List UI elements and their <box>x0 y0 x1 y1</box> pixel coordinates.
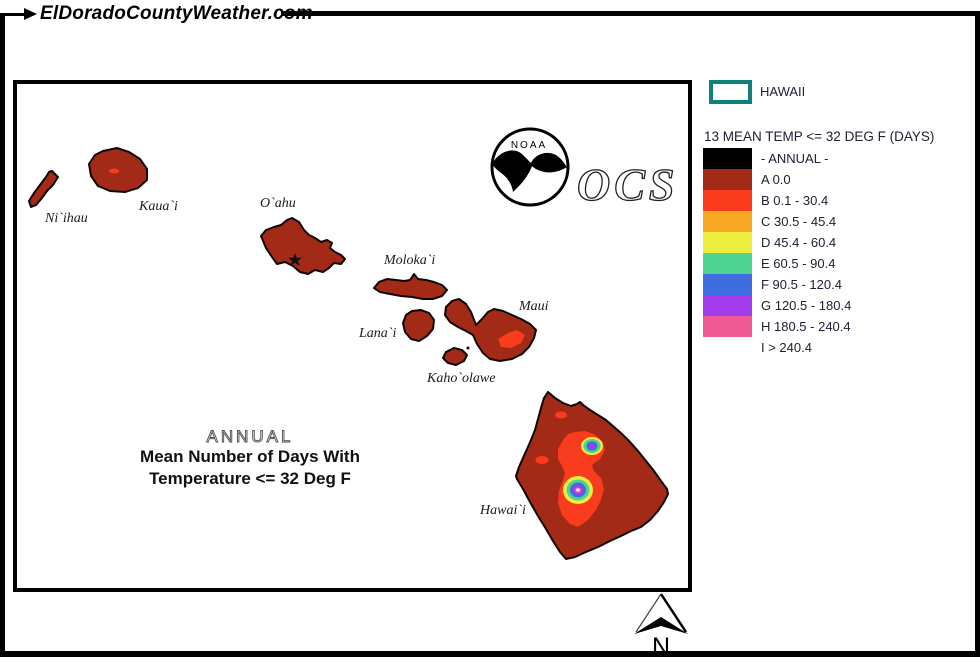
mauna-kea-zone-g <box>589 443 595 448</box>
island-label-niihau: Ni`ihau <box>45 211 88 227</box>
maui-point-marker <box>467 347 470 350</box>
legend-swatch <box>703 253 752 274</box>
legend-row-label: B 0.1 - 30.4 <box>761 190 828 211</box>
legend-row: A 0.0 <box>703 169 851 190</box>
legend-swatch <box>703 148 752 169</box>
legend-swatch <box>703 337 752 358</box>
annual-title: ANNUAL <box>207 427 294 446</box>
compass-n-label: N <box>652 633 670 661</box>
legend-row: H 180.5 - 240.4 <box>703 316 851 337</box>
hawaii-extent-swatch <box>709 80 752 104</box>
page: ElDoradoCountyWeather.com <box>0 0 980 662</box>
legend-row-label: D 45.4 - 60.4 <box>761 232 836 253</box>
north-arrow-icon: N <box>634 594 688 661</box>
legend-swatch <box>703 169 752 190</box>
legend-row: C 30.5 - 45.4 <box>703 211 851 232</box>
island-label-hawaii: Hawai`i <box>480 503 526 519</box>
legend-row: - ANNUAL - <box>703 148 851 169</box>
legend-row: B 0.1 - 30.4 <box>703 190 851 211</box>
legend-swatch <box>703 316 752 337</box>
island-lanai-shape <box>403 310 434 341</box>
ocs-logo-text: OCS <box>577 159 678 210</box>
hawaii-extent-label: HAWAII <box>760 84 805 99</box>
noaa-logo-text: NOAA <box>511 140 547 151</box>
legend-swatch <box>703 190 752 211</box>
island-label-molokai: Moloka`i <box>384 253 435 269</box>
legend-row-label: A 0.0 <box>761 169 791 190</box>
island-label-maui: Maui <box>519 299 549 315</box>
island-label-oahu: O`ahu <box>260 196 296 212</box>
legend-row: F 90.5 - 120.4 <box>703 274 851 295</box>
legend-rows: - ANNUAL - A 0.0 B 0.1 - 30.4 C 30.5 - 4… <box>703 148 851 358</box>
legend-row-label: G 120.5 - 180.4 <box>761 295 851 316</box>
legend-row: E 60.5 - 90.4 <box>703 253 851 274</box>
island-oahu-shape <box>261 218 345 274</box>
legend-row-label: E 60.5 - 90.4 <box>761 253 835 274</box>
legend-swatch <box>703 211 752 232</box>
kauai-frost-spot <box>109 169 119 174</box>
hawaii-frost-spot-north <box>555 412 567 419</box>
legend-row-label: I > 240.4 <box>761 337 812 358</box>
legend-title: 13 MEAN TEMP <= 32 DEG F (DAYS) <box>704 129 934 144</box>
legend-row-label: H 180.5 - 240.4 <box>761 316 851 337</box>
legend-row: D 45.4 - 60.4 <box>703 232 851 253</box>
legend-row: I > 240.4 <box>703 337 851 358</box>
mauna-loa-zone-i <box>576 489 580 492</box>
legend-row-label: F 90.5 - 120.4 <box>761 274 842 295</box>
map-subtitle-line2: Temperature <= 32 Deg F <box>110 469 390 489</box>
legend-swatch <box>703 295 752 316</box>
noaa-logo-icon: NOAA <box>492 129 568 205</box>
legend-swatch <box>703 274 752 295</box>
legend-row-label: C 30.5 - 45.4 <box>761 211 836 232</box>
island-label-kahoolawe: Kaho`olawe <box>427 371 495 387</box>
hawaii-frost-spot-west <box>536 456 549 464</box>
legend-row: G 120.5 - 180.4 <box>703 295 851 316</box>
island-niihau-shape <box>29 171 58 207</box>
island-label-lanai: Lana`i <box>359 326 396 342</box>
map-subtitle-line1: Mean Number of Days With <box>110 447 390 467</box>
legend-row-label: - ANNUAL - <box>761 148 828 169</box>
legend-swatch <box>703 232 752 253</box>
island-kahoolawe-shape <box>443 348 467 365</box>
island-label-kauai: Kaua`i <box>139 199 178 215</box>
island-molokai-shape <box>374 274 447 299</box>
